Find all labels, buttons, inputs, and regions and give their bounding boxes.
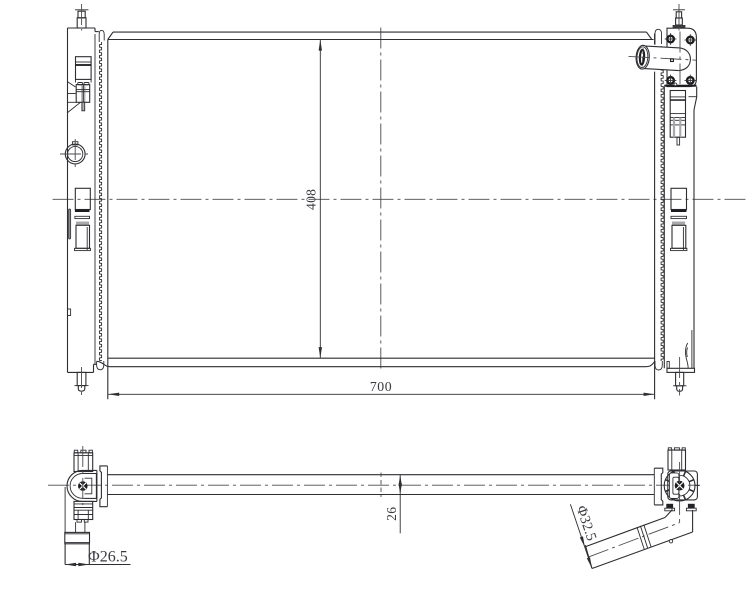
svg-text:26: 26 <box>384 507 399 521</box>
svg-text:408: 408 <box>304 189 319 210</box>
svg-text:700: 700 <box>370 379 392 394</box>
svg-text:Φ26.5: Φ26.5 <box>88 549 128 566</box>
